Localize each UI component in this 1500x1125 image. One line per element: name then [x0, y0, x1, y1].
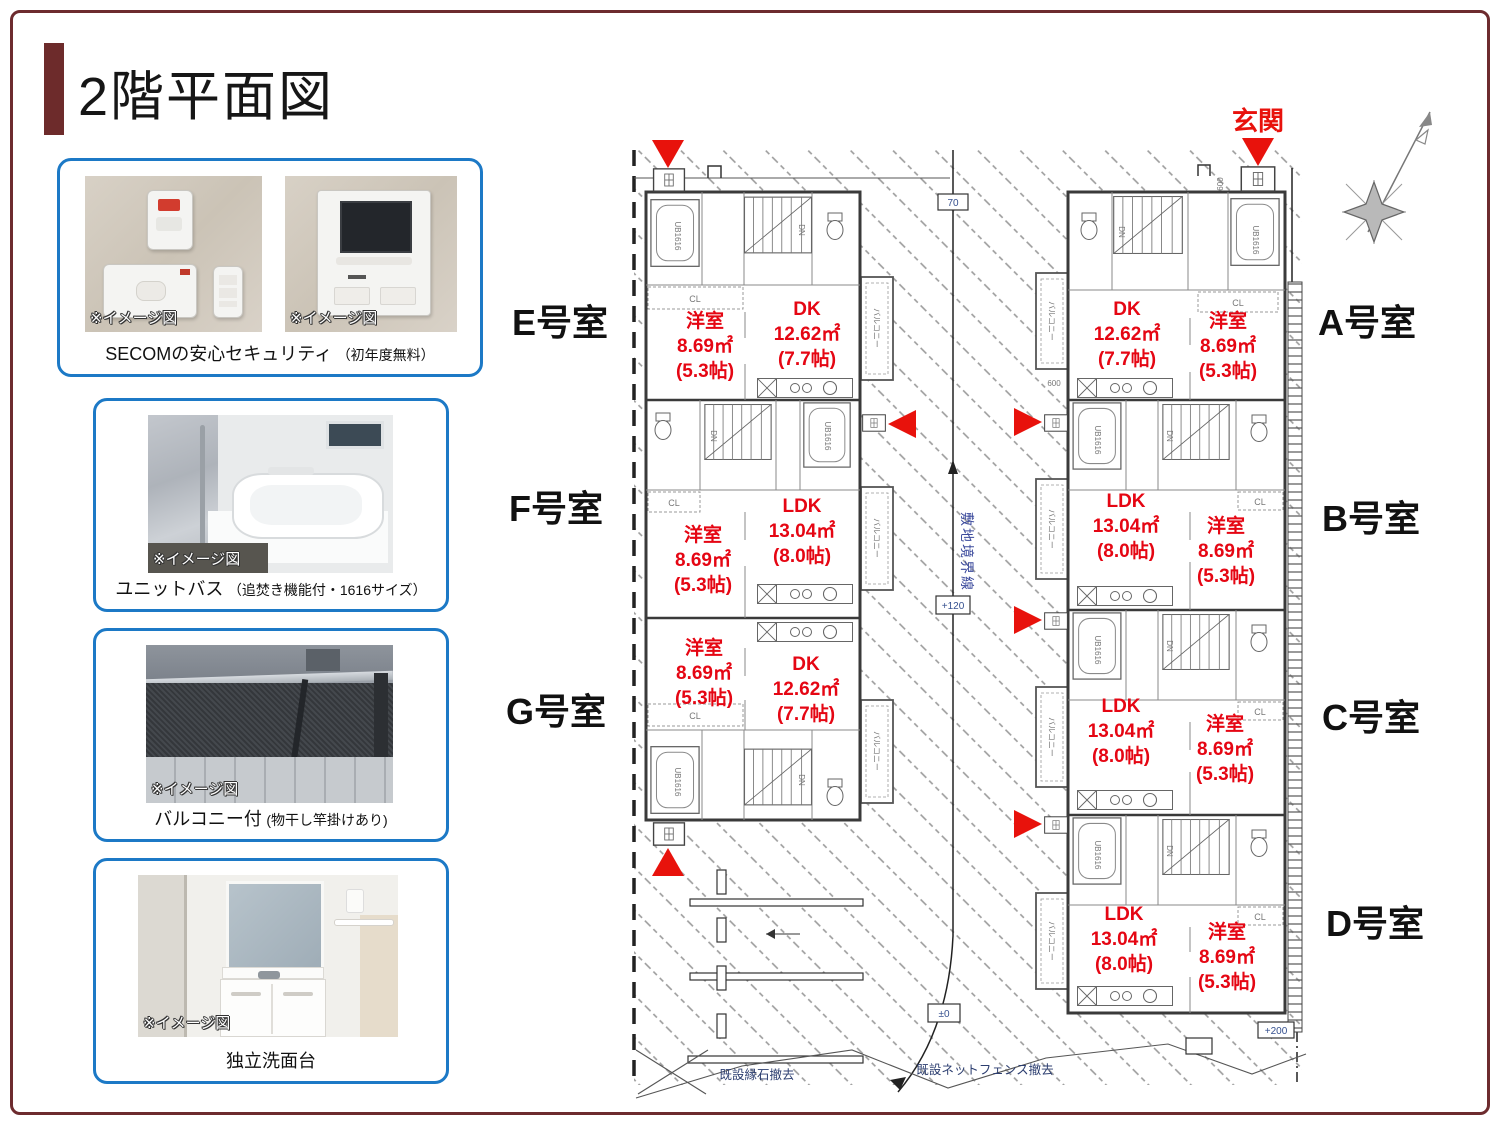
room-label: DK: [1113, 299, 1141, 320]
slide-page: 2階平面図 ※イメージ図: [0, 0, 1500, 1125]
room-label: (5.3帖): [1199, 359, 1257, 382]
room-label: 8.69㎡: [677, 334, 733, 357]
unit-label-f: F号室: [509, 488, 603, 529]
dn-label: DN: [1165, 845, 1174, 857]
room-label: 12.62㎡: [773, 677, 840, 700]
cl-label: CL: [689, 294, 701, 304]
dn-label: DN: [797, 224, 806, 236]
room-label: (5.3帖): [1198, 970, 1256, 993]
room-label: (8.0帖): [773, 544, 831, 567]
room-label: (8.0帖): [1097, 539, 1155, 562]
kitchen-counter: [1078, 379, 1173, 398]
room-label: 13.04㎡: [1091, 927, 1158, 950]
room-label: DK: [792, 654, 820, 675]
room-label: 12.62㎡: [774, 322, 841, 345]
room-label: LDK: [1104, 904, 1143, 925]
room-label: 12.62㎡: [1094, 322, 1161, 345]
kitchen-counter: [758, 379, 853, 398]
room-label: (5.3帖): [675, 686, 733, 709]
unit-label-c: C号室: [1322, 697, 1420, 738]
unit-label-a: A号室: [1318, 302, 1416, 343]
kitchen-counter: [1078, 791, 1173, 810]
marker-pm0: ±0: [938, 1009, 949, 1020]
unit-label-b: B号室: [1322, 498, 1420, 539]
balconies-left: バルコニー バルコニー バルコニー: [861, 277, 893, 803]
dim-600: 600: [1047, 379, 1061, 388]
room-label: 8.69㎡: [1199, 945, 1255, 968]
toilet: [827, 779, 843, 806]
fence-note: 既設ネットフェンス撤去: [916, 1062, 1053, 1077]
room-label: 洋室: [1207, 514, 1245, 537]
dim-600: 600: [1216, 177, 1225, 191]
dn-label: DN: [1165, 430, 1174, 442]
room-label: 13.04㎡: [1088, 719, 1155, 742]
dn-label: DN: [1165, 640, 1174, 652]
marker-70: 70: [947, 198, 959, 209]
unit-label-g: G号室: [506, 691, 606, 732]
entrance-label: 玄関: [1232, 106, 1284, 136]
room-label: 8.69㎡: [1198, 539, 1254, 562]
toilet: [1251, 830, 1267, 857]
room-label: 洋室: [684, 523, 722, 546]
kitchen-counter: [758, 585, 853, 604]
balcony-label: バルコニー: [1047, 921, 1056, 961]
porch-a: [1241, 167, 1274, 191]
toilet: [827, 213, 843, 240]
room-label: 8.69㎡: [675, 548, 731, 571]
ub-label: UB1616: [823, 422, 832, 451]
dn-label: DN: [797, 774, 806, 786]
marker-plus120: +120: [942, 601, 965, 612]
balcony-label: バルコニー: [1047, 301, 1056, 341]
room-label: 8.69㎡: [1197, 737, 1253, 760]
room-label: LDK: [782, 496, 821, 517]
room-label: (7.7帖): [777, 702, 835, 725]
porch-b: [1045, 415, 1068, 431]
ub-label: UB1616: [1093, 841, 1102, 870]
toilet: [655, 413, 671, 440]
ub-label: UB1616: [673, 222, 682, 251]
curb-note: 既設縁石撤去: [719, 1067, 794, 1082]
porch-d: [1045, 817, 1068, 833]
ub-label: UB1616: [1093, 426, 1102, 455]
room-label: (5.3帖): [674, 573, 732, 596]
room-label: 洋室: [1208, 920, 1246, 943]
room-label: LDK: [1101, 696, 1140, 717]
cl-label: CL: [1254, 707, 1266, 717]
cl-label: CL: [689, 711, 701, 721]
ub-label: UB1616: [1251, 226, 1260, 255]
unit-label-d: D号室: [1326, 903, 1424, 944]
balcony-label: バルコニー: [872, 518, 881, 558]
balcony-label: バルコニー: [872, 731, 881, 771]
room-label: (7.7帖): [1098, 347, 1156, 370]
room-label: 13.04㎡: [1093, 514, 1160, 537]
marker-plus200: +200: [1265, 1026, 1288, 1037]
balcony-label: バルコニー: [1047, 717, 1056, 757]
balcony-label: バルコニー: [872, 308, 881, 348]
kitchen-counter: [1078, 587, 1173, 606]
unit-label-e: E号室: [512, 302, 608, 343]
porch-f: [863, 415, 886, 431]
room-label: 洋室: [1206, 712, 1244, 735]
room-label: LDK: [1106, 491, 1145, 512]
room-label: 8.69㎡: [676, 661, 732, 684]
kitchen-counter: [1078, 987, 1173, 1006]
right-building: バルコニー バルコニー バルコニー バルコニー: [1036, 192, 1285, 1013]
dn-label: DN: [1117, 226, 1126, 238]
site-boundary-label: 敷地境界線: [959, 512, 975, 592]
ub-label: UB1616: [1093, 636, 1102, 665]
compass-icon: [1342, 112, 1432, 244]
room-label: (8.0帖): [1092, 744, 1150, 767]
balcony-label: バルコニー: [1047, 509, 1056, 549]
room-label: (5.3帖): [676, 359, 734, 382]
cl-label: CL: [1254, 497, 1266, 507]
kitchen-counter: [758, 623, 853, 642]
dn-label: DN: [709, 430, 718, 442]
room-label: 8.69㎡: [1200, 334, 1256, 357]
staircase: [1113, 196, 1183, 254]
room-label: (8.0帖): [1095, 952, 1153, 975]
cl-label: CL: [1254, 912, 1266, 922]
room-label: 洋室: [686, 309, 724, 332]
porch-c: [1045, 613, 1068, 629]
left-building: バルコニー バルコニー バルコニー: [646, 192, 893, 820]
room-label: DK: [793, 299, 821, 320]
cl-label: CL: [668, 498, 680, 508]
porch-e: [654, 169, 685, 191]
room-label: (7.7帖): [778, 347, 836, 370]
floor-plan: バルコニー バルコニー バルコニー: [0, 0, 1500, 1125]
toilet: [1251, 625, 1267, 652]
room-label: 13.04㎡: [769, 519, 836, 542]
ub-label: UB1616: [673, 768, 682, 797]
fence-strip: [1288, 282, 1302, 1032]
toilet: [1251, 415, 1267, 442]
room-label: 洋室: [1209, 309, 1247, 332]
toilet: [1081, 213, 1097, 240]
room-label: 洋室: [685, 636, 723, 659]
room-label: (5.3帖): [1197, 564, 1255, 587]
cl-label: CL: [1232, 298, 1244, 308]
porch-g: [654, 823, 685, 845]
room-label: (5.3帖): [1196, 762, 1254, 785]
